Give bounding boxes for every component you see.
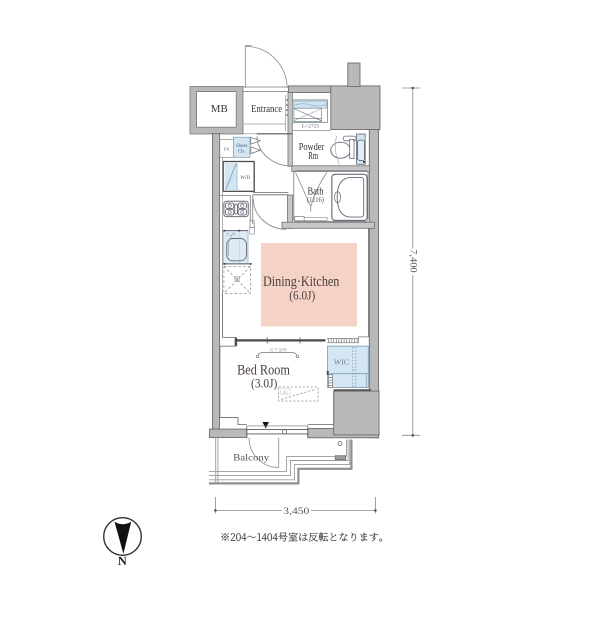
svg-text:Balcony: Balcony	[233, 453, 269, 463]
svg-text:(1116): (1116)	[307, 195, 324, 204]
svg-text:(3.0J): (3.0J)	[251, 377, 277, 391]
svg-text:(6.0J): (6.0J)	[289, 289, 315, 303]
svg-text:AC: AC	[283, 389, 289, 394]
svg-text:W/D: W/D	[240, 176, 250, 181]
svg-text:WIC: WIC	[334, 359, 350, 367]
svg-text:L=2725: L=2725	[302, 125, 320, 130]
svg-text:Cls.: Cls.	[238, 149, 246, 154]
svg-text:3,450: 3,450	[283, 506, 310, 516]
svg-text:Entrance: Entrance	[251, 104, 282, 115]
svg-text:PS: PS	[224, 146, 230, 151]
svg-text:Shoes: Shoes	[236, 144, 248, 149]
svg-text:MB: MB	[211, 104, 228, 115]
svg-text:Rm: Rm	[308, 151, 318, 162]
svg-text:7,400: 7,400	[409, 249, 419, 273]
